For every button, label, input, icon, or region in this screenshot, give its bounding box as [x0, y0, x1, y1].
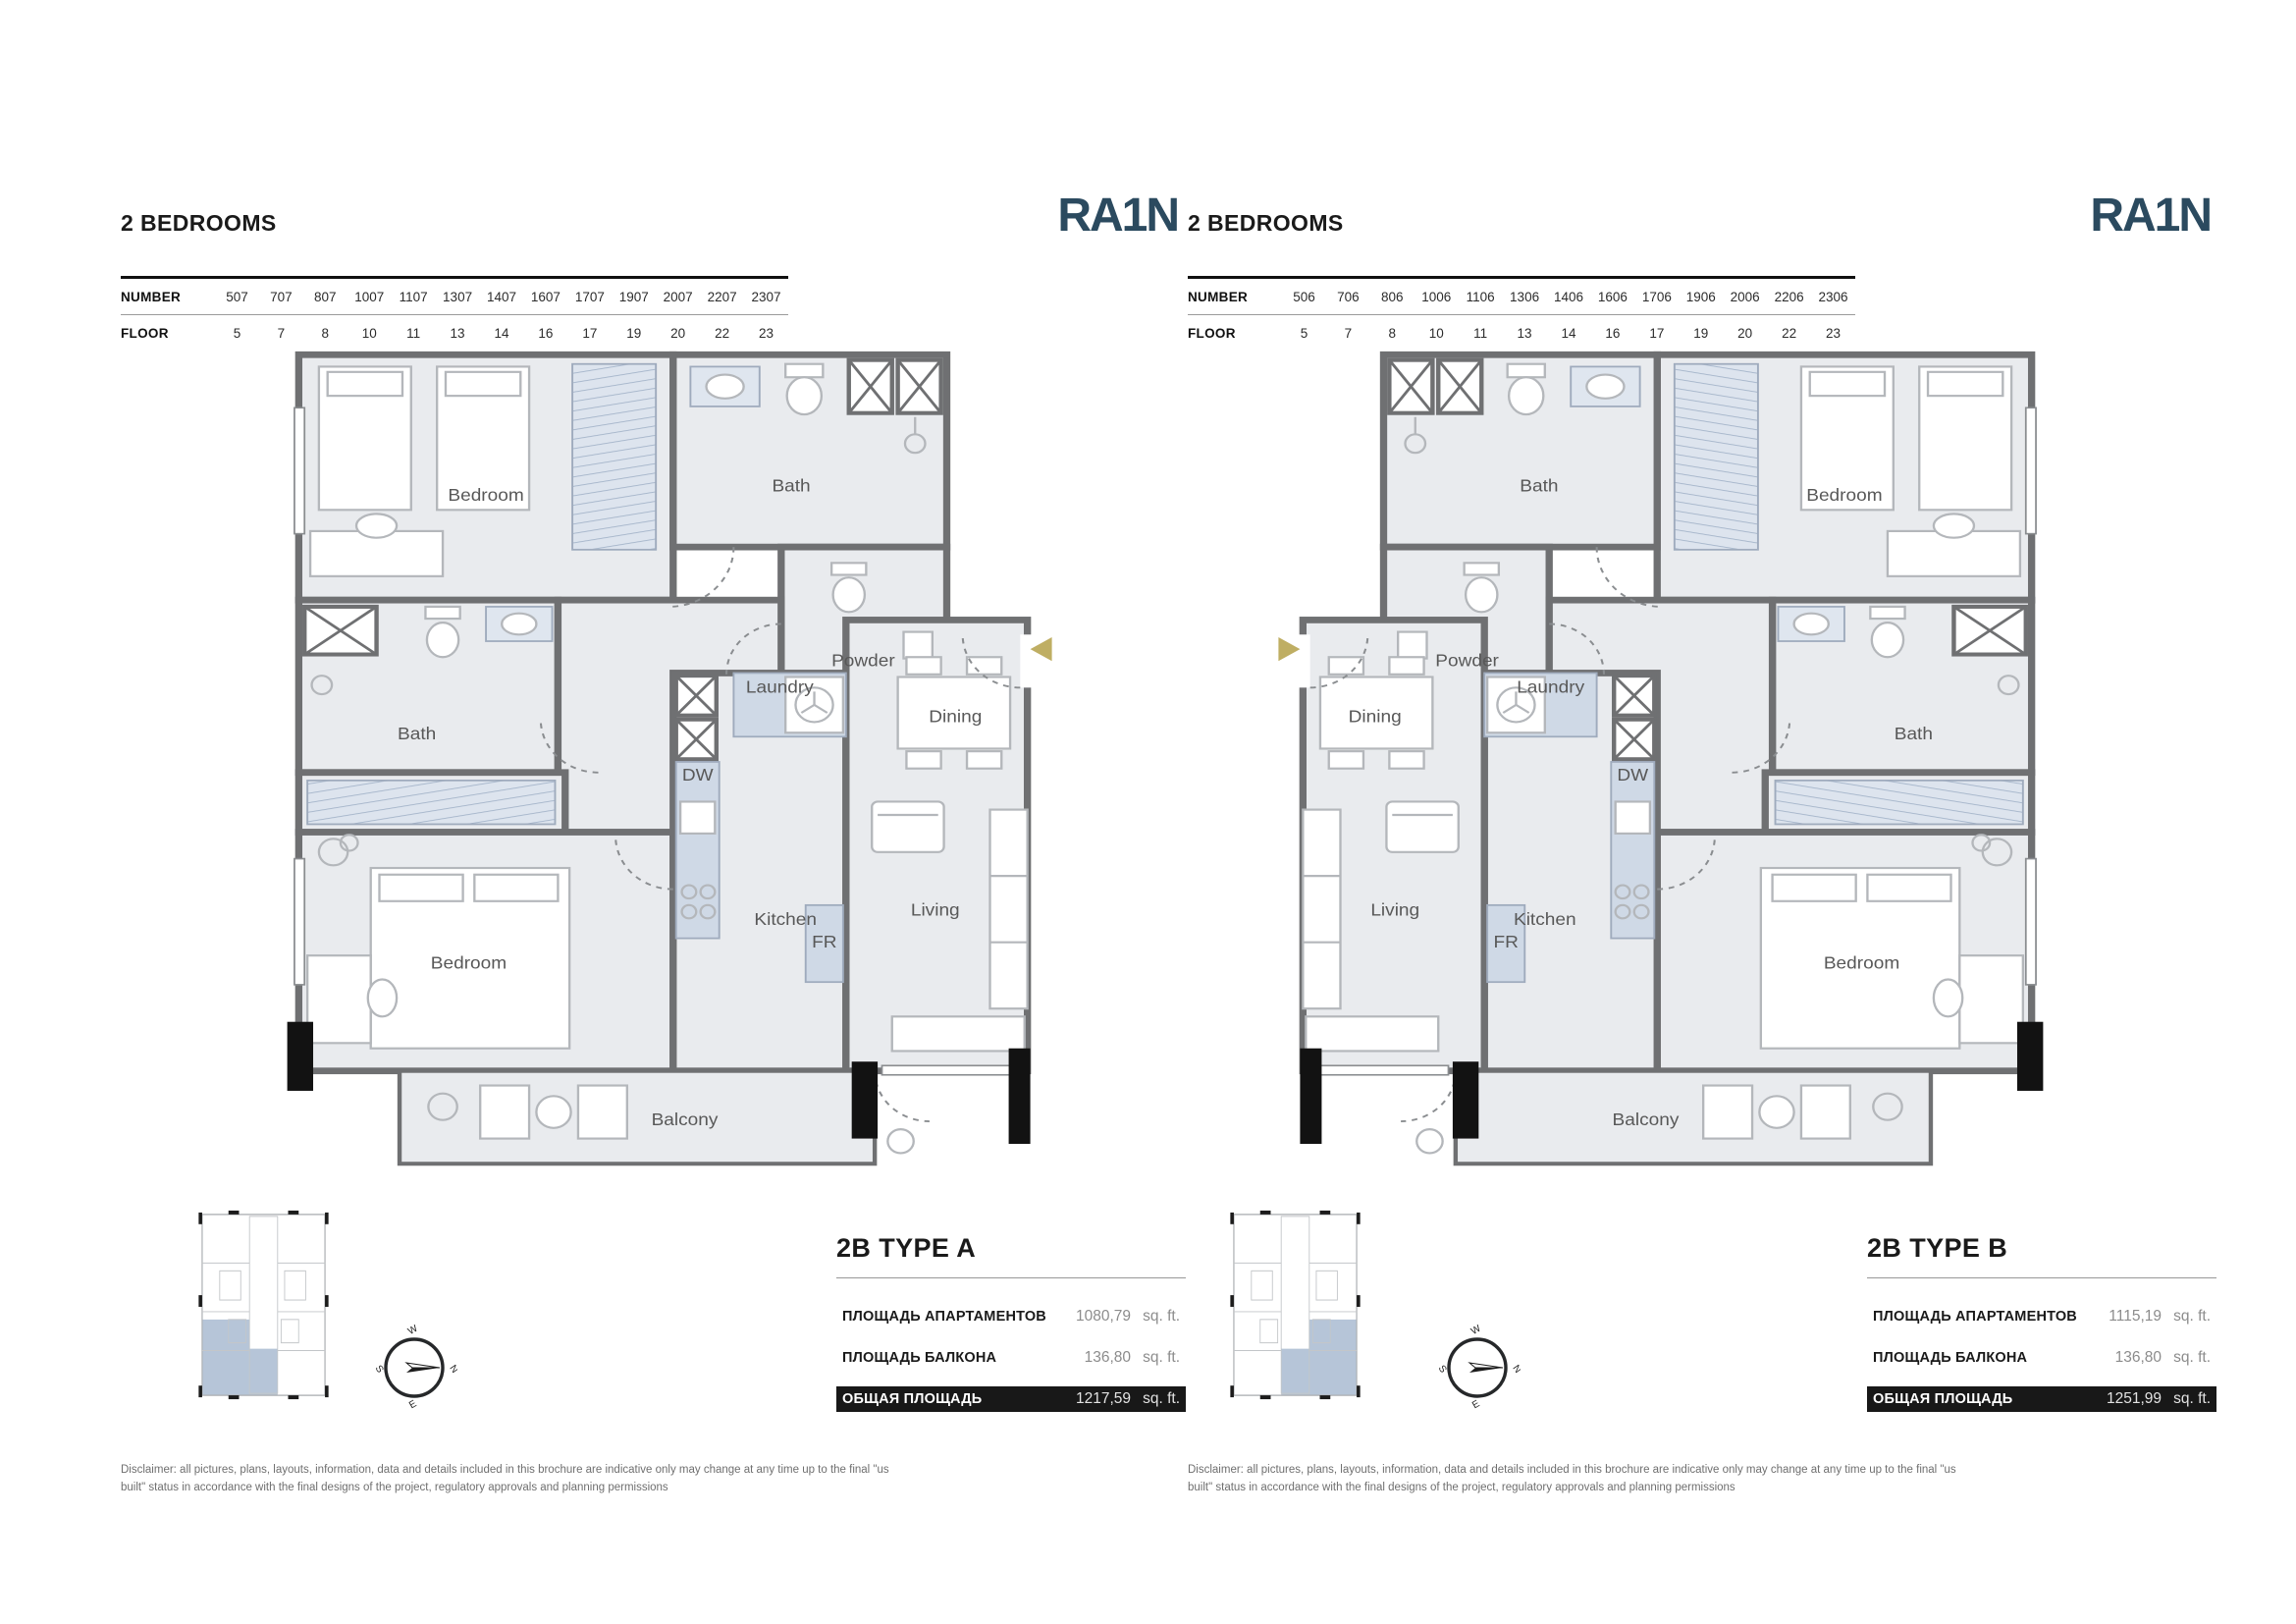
- area-value: 1251,99: [2097, 1390, 2162, 1408]
- room-label: FR: [1493, 932, 1518, 951]
- area-unit: sq. ft.: [2162, 1349, 2211, 1367]
- room-label: FR: [812, 932, 836, 951]
- compass-south: S: [1436, 1364, 1449, 1376]
- area-value: 1217,59: [1066, 1390, 1131, 1408]
- area-value: 136,80: [2097, 1349, 2162, 1367]
- unit-number: 1106: [1459, 290, 1503, 304]
- floor-row-label: FLOOR: [1188, 326, 1282, 341]
- room-label: Bath: [398, 724, 436, 743]
- floor-plan-type-b: BathBedroomPowderBathLaundryDWKitchenFRB…: [1274, 335, 2104, 1170]
- unit-number: 2306: [1811, 290, 1855, 304]
- room-label: DW: [1617, 765, 1648, 785]
- unit-number: 1906: [1679, 290, 1723, 304]
- compass-north: N: [1510, 1363, 1521, 1375]
- room-label: Bath: [772, 475, 810, 495]
- area-row: ОБЩАЯ ПЛОЩАДЬ 1251,99 sq. ft.: [1867, 1386, 2216, 1412]
- room-label: Bedroom: [1824, 952, 1899, 972]
- area-value: 1080,79: [1066, 1308, 1131, 1326]
- floor-plan-type-a: BedroomBathPowderBathLaundryDWKitchenFRB…: [227, 335, 1056, 1170]
- room-label: Bedroom: [431, 952, 507, 972]
- area-unit: sq. ft.: [2162, 1390, 2211, 1408]
- unit-number: 1107: [392, 290, 436, 304]
- highlighted-unit: [1281, 1320, 1357, 1395]
- area-row: ПЛОЩАДЬ БАЛКОНА 136,80 sq. ft.: [836, 1345, 1186, 1371]
- unit-number: 1407: [480, 290, 524, 304]
- area-value: 136,80: [1066, 1349, 1131, 1367]
- room-label: Laundry: [746, 677, 815, 696]
- unit-number: 507: [215, 290, 259, 304]
- area-row: ОБЩАЯ ПЛОЩАДЬ 1217,59 sq. ft.: [836, 1386, 1186, 1412]
- unit-number: 807: [303, 290, 347, 304]
- highlighted-unit: [202, 1320, 278, 1395]
- key-plan: [193, 1203, 334, 1407]
- room-label: Dining: [1349, 706, 1402, 726]
- divider: [1867, 1277, 2216, 1278]
- room-label: Dining: [929, 706, 982, 726]
- unit-number: 707: [259, 290, 303, 304]
- unit-number: 1706: [1634, 290, 1679, 304]
- unit-number: 2206: [1767, 290, 1811, 304]
- number-row-label: NUMBER: [1188, 290, 1282, 304]
- number-row: NUMBER 506706806100611061306140616061706…: [1188, 279, 1855, 315]
- unit-number: 1606: [1590, 290, 1634, 304]
- page-title: 2 BEDROOMS: [1188, 210, 1344, 237]
- compass-needle: [406, 1363, 440, 1373]
- unit-number: 2307: [744, 290, 788, 304]
- compass-north: N: [447, 1363, 457, 1375]
- unit-number: 706: [1326, 290, 1370, 304]
- unit-number: 1707: [567, 290, 612, 304]
- area-unit: sq. ft.: [2162, 1308, 2211, 1326]
- area-label: ПЛОЩАДЬ БАЛКОНА: [842, 1350, 1066, 1366]
- area-unit: sq. ft.: [1131, 1390, 1180, 1408]
- room-label: Powder: [1435, 650, 1499, 670]
- brand-logo: RA1N: [2090, 192, 2211, 240]
- type-summary: 2B TYPE A ПЛОЩАДЬ АПАРТАМЕНТОВ 1080,79 s…: [836, 1233, 1186, 1428]
- area-row: ПЛОЩАДЬ АПАРТАМЕНТОВ 1115,19 sq. ft.: [1867, 1304, 2216, 1329]
- compass-west: W: [406, 1325, 420, 1337]
- area-table: ПЛОЩАДЬ АПАРТАМЕНТОВ 1115,19 sq. ft. ПЛО…: [1867, 1304, 2216, 1412]
- room-label: Bedroom: [448, 485, 523, 505]
- brand-logo: RA1N: [1057, 192, 1178, 240]
- room-label: Bath: [1895, 724, 1933, 743]
- room-label: Kitchen: [1514, 909, 1576, 929]
- number-row: NUMBER 507707807100711071307140716071707…: [121, 279, 788, 315]
- disclaimer-text: Disclaimer: all pictures, plans, layouts…: [1188, 1462, 1983, 1497]
- compass-west: W: [1469, 1325, 1483, 1337]
- unit-number: 506: [1282, 290, 1326, 304]
- page-title: 2 BEDROOMS: [121, 210, 277, 237]
- area-label: ПЛОЩАДЬ АПАРТАМЕНТОВ: [842, 1309, 1066, 1325]
- unit-number: 2006: [1723, 290, 1767, 304]
- compass-south: S: [373, 1364, 386, 1376]
- area-unit: sq. ft.: [1131, 1349, 1180, 1367]
- unit-number: 1006: [1415, 290, 1459, 304]
- room-label: Balcony: [652, 1110, 720, 1129]
- area-row: ПЛОЩАДЬ БАЛКОНА 136,80 sq. ft.: [1867, 1345, 2216, 1371]
- key-plan: [1225, 1203, 1365, 1407]
- compass-needle: [1469, 1363, 1503, 1373]
- unit-number: 806: [1370, 290, 1415, 304]
- compass-east: E: [407, 1398, 419, 1411]
- room-label: Kitchen: [754, 909, 817, 929]
- unit-number: 1907: [612, 290, 656, 304]
- type-title: 2B TYPE A: [836, 1233, 1186, 1264]
- area-value: 1115,19: [2097, 1308, 2162, 1326]
- room-label: DW: [682, 765, 714, 785]
- type-title: 2B TYPE B: [1867, 1233, 2216, 1264]
- room-label: Bath: [1520, 475, 1558, 495]
- disclaimer-text: Disclaimer: all pictures, plans, layouts…: [121, 1462, 916, 1497]
- room-label: Living: [911, 899, 960, 919]
- compass-east: E: [1470, 1398, 1482, 1411]
- unit-number: 1406: [1547, 290, 1591, 304]
- unit-number: 1607: [523, 290, 567, 304]
- area-label: ОБЩАЯ ПЛОЩАДЬ: [1873, 1391, 2097, 1407]
- area-label: ПЛОЩАДЬ АПАРТАМЕНТОВ: [1873, 1309, 2097, 1325]
- room-label: Laundry: [1517, 677, 1585, 696]
- area-row: ПЛОЩАДЬ АПАРТАМЕНТОВ 1080,79 sq. ft.: [836, 1304, 1186, 1329]
- unit-number: 2007: [656, 290, 700, 304]
- unit-number: 2207: [700, 290, 744, 304]
- room-label: Living: [1370, 899, 1419, 919]
- room-label: Balcony: [1613, 1110, 1681, 1129]
- room-label: Powder: [831, 650, 895, 670]
- panel-type-b: 2 BEDROOMS RA1N NUMBER 50670680610061106…: [1188, 0, 2254, 1624]
- compass: W N S E: [1434, 1325, 1521, 1411]
- area-label: ПЛОЩАДЬ БАЛКОНА: [1873, 1350, 2097, 1366]
- number-row-label: NUMBER: [121, 290, 215, 304]
- floor-row-label: FLOOR: [121, 326, 215, 341]
- area-unit: sq. ft.: [1131, 1308, 1180, 1326]
- divider: [836, 1277, 1186, 1278]
- area-table: ПЛОЩАДЬ АПАРТАМЕНТОВ 1080,79 sq. ft. ПЛО…: [836, 1304, 1186, 1412]
- unit-number: 1306: [1503, 290, 1547, 304]
- room-label: Bedroom: [1806, 485, 1882, 505]
- compass: W N S E: [371, 1325, 457, 1411]
- panel-type-a: 2 BEDROOMS RA1N NUMBER 50770780710071107…: [121, 0, 1187, 1624]
- unit-number: 1307: [436, 290, 480, 304]
- type-summary: 2B TYPE B ПЛОЩАДЬ АПАРТАМЕНТОВ 1115,19 s…: [1867, 1233, 2216, 1428]
- area-label: ОБЩАЯ ПЛОЩАДЬ: [842, 1391, 1066, 1407]
- unit-number: 1007: [347, 290, 392, 304]
